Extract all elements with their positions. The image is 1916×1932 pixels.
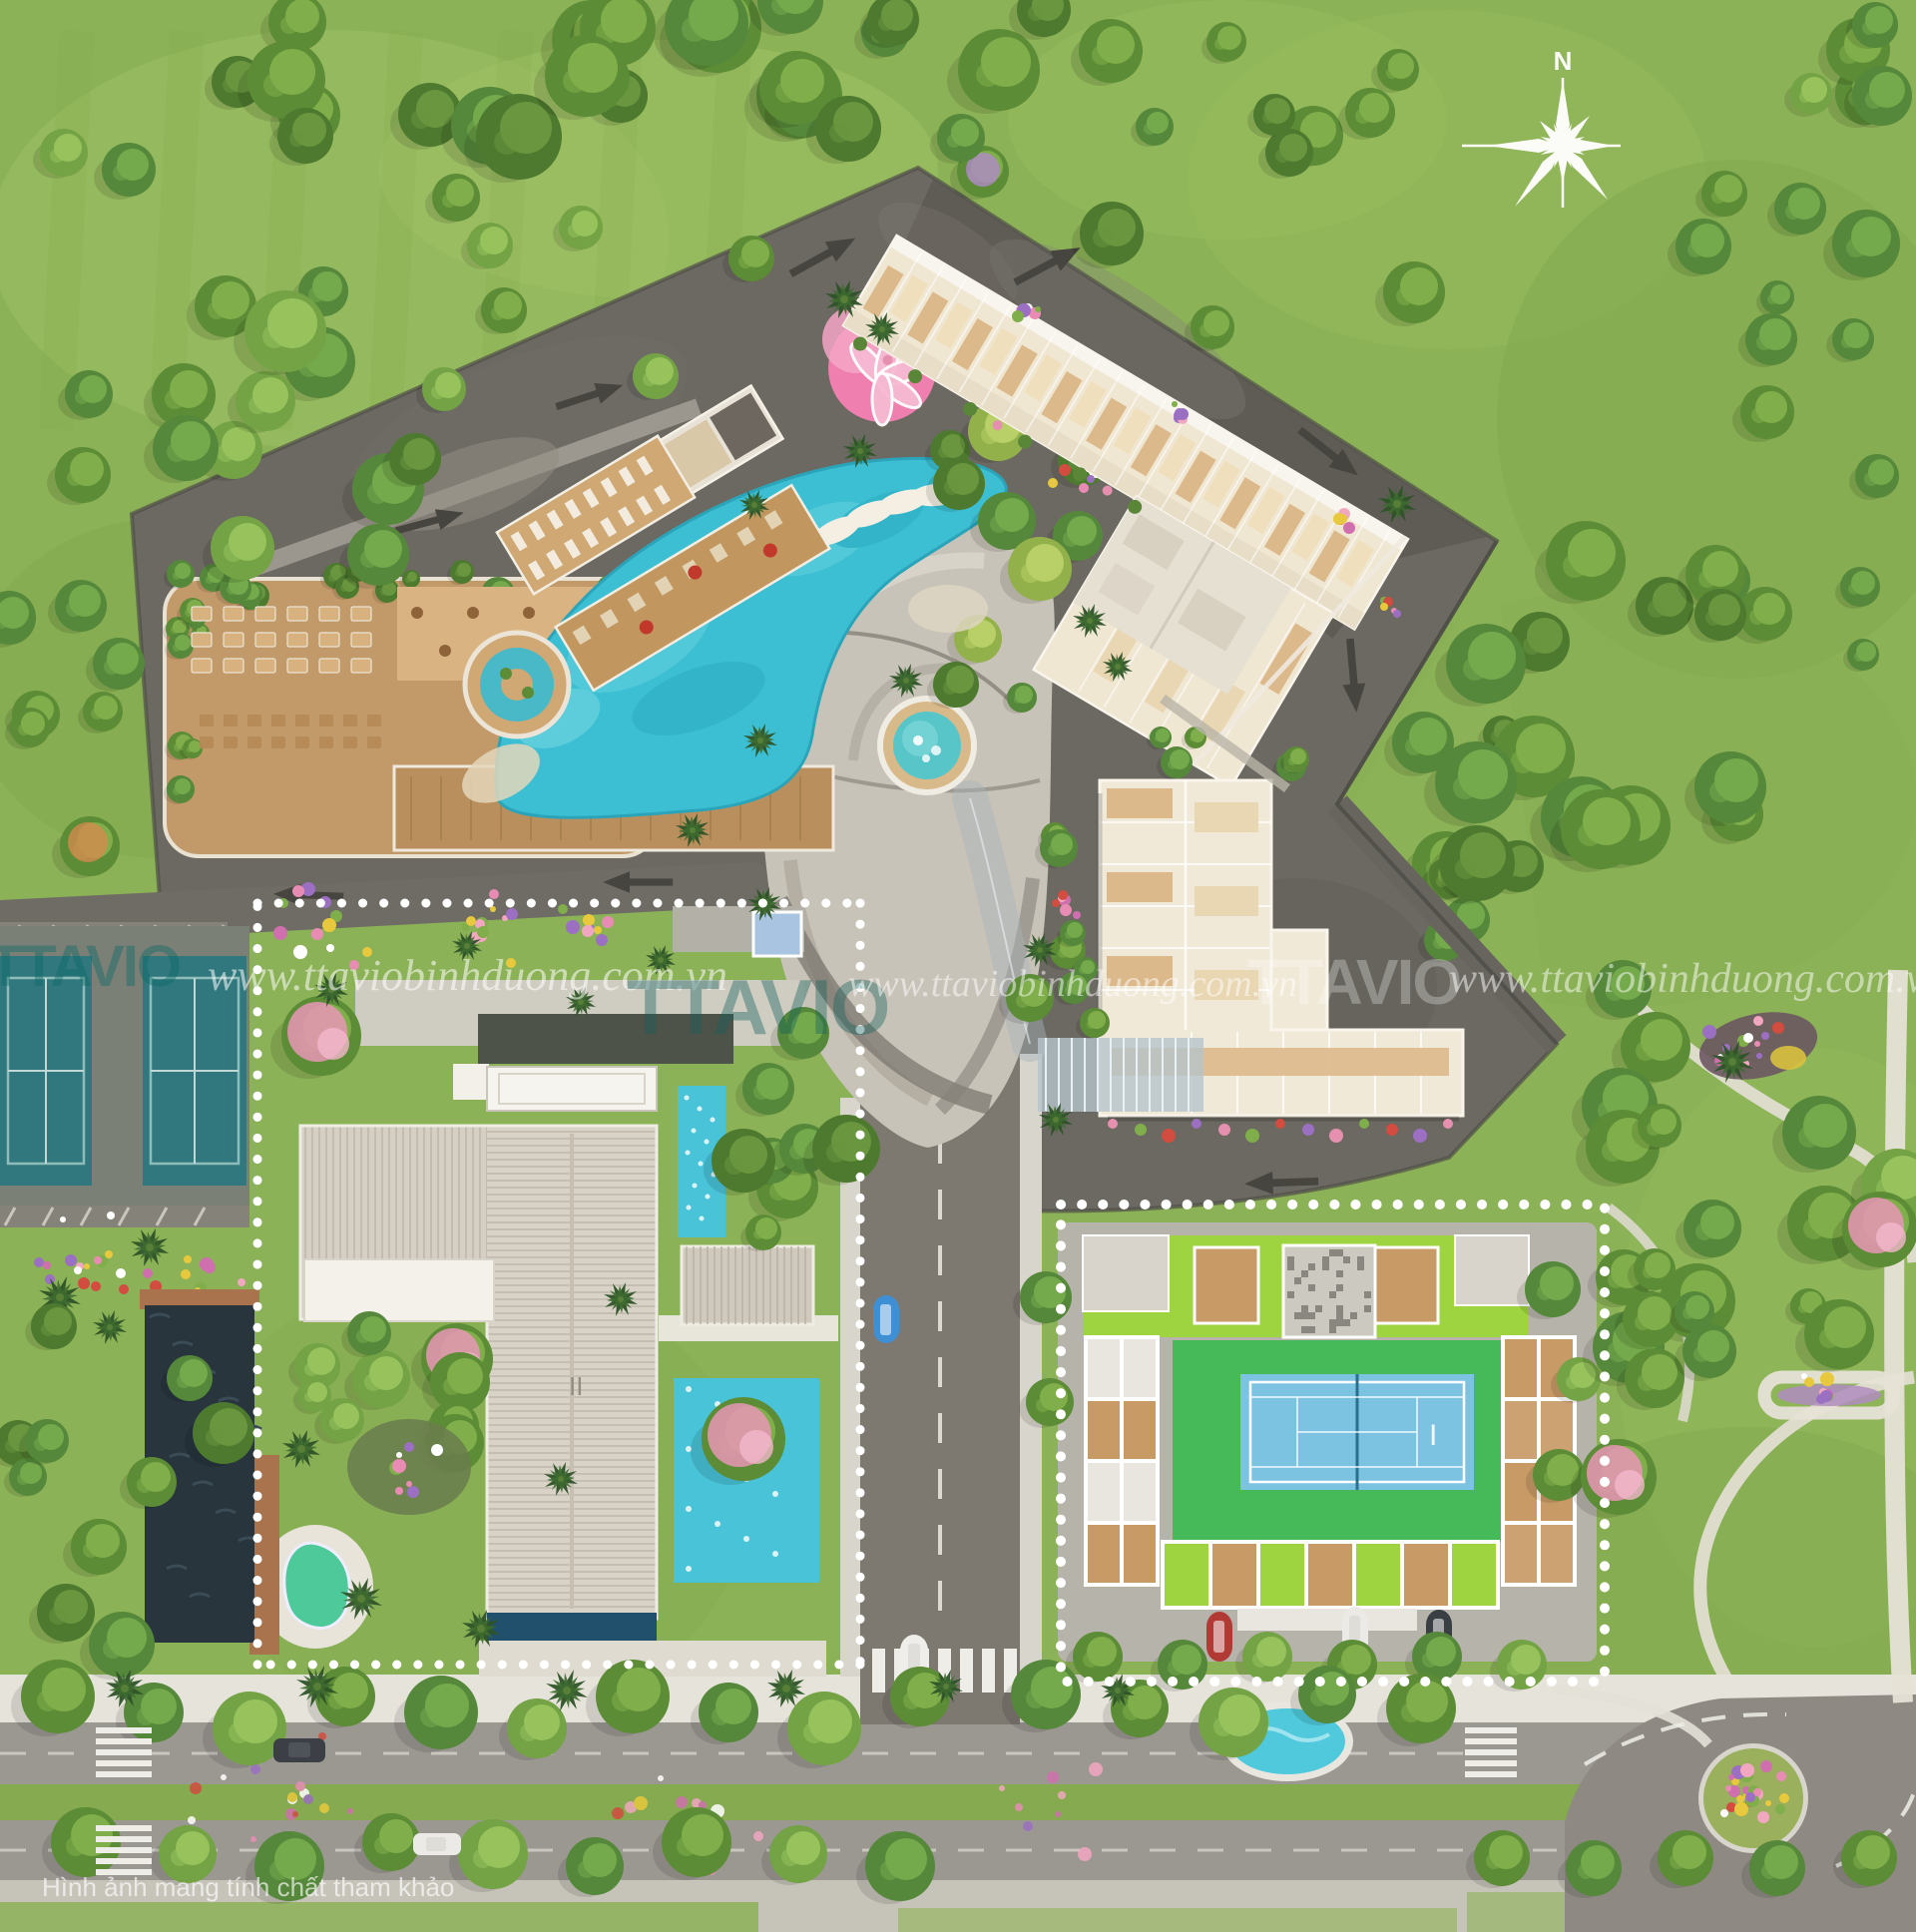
svg-text:II: II xyxy=(569,1371,583,1401)
svg-text:www.ttaviobinhduong.com.vn: www.ttaviobinhduong.com.vn xyxy=(1449,956,1916,1002)
svg-text:TTAVIO: TTAVIO xyxy=(0,934,180,999)
svg-text:TTAVIO: TTAVIO xyxy=(1247,946,1460,1018)
svg-text:Hình ảnh mang tính chất tham k: Hình ảnh mang tính chất tham khảo xyxy=(42,1872,454,1902)
svg-text:www.ttaviobinhduong.com.vn: www.ttaviobinhduong.com.vn xyxy=(848,963,1297,1005)
svg-text:N: N xyxy=(1554,46,1573,76)
svg-text:I: I xyxy=(1429,1419,1437,1452)
